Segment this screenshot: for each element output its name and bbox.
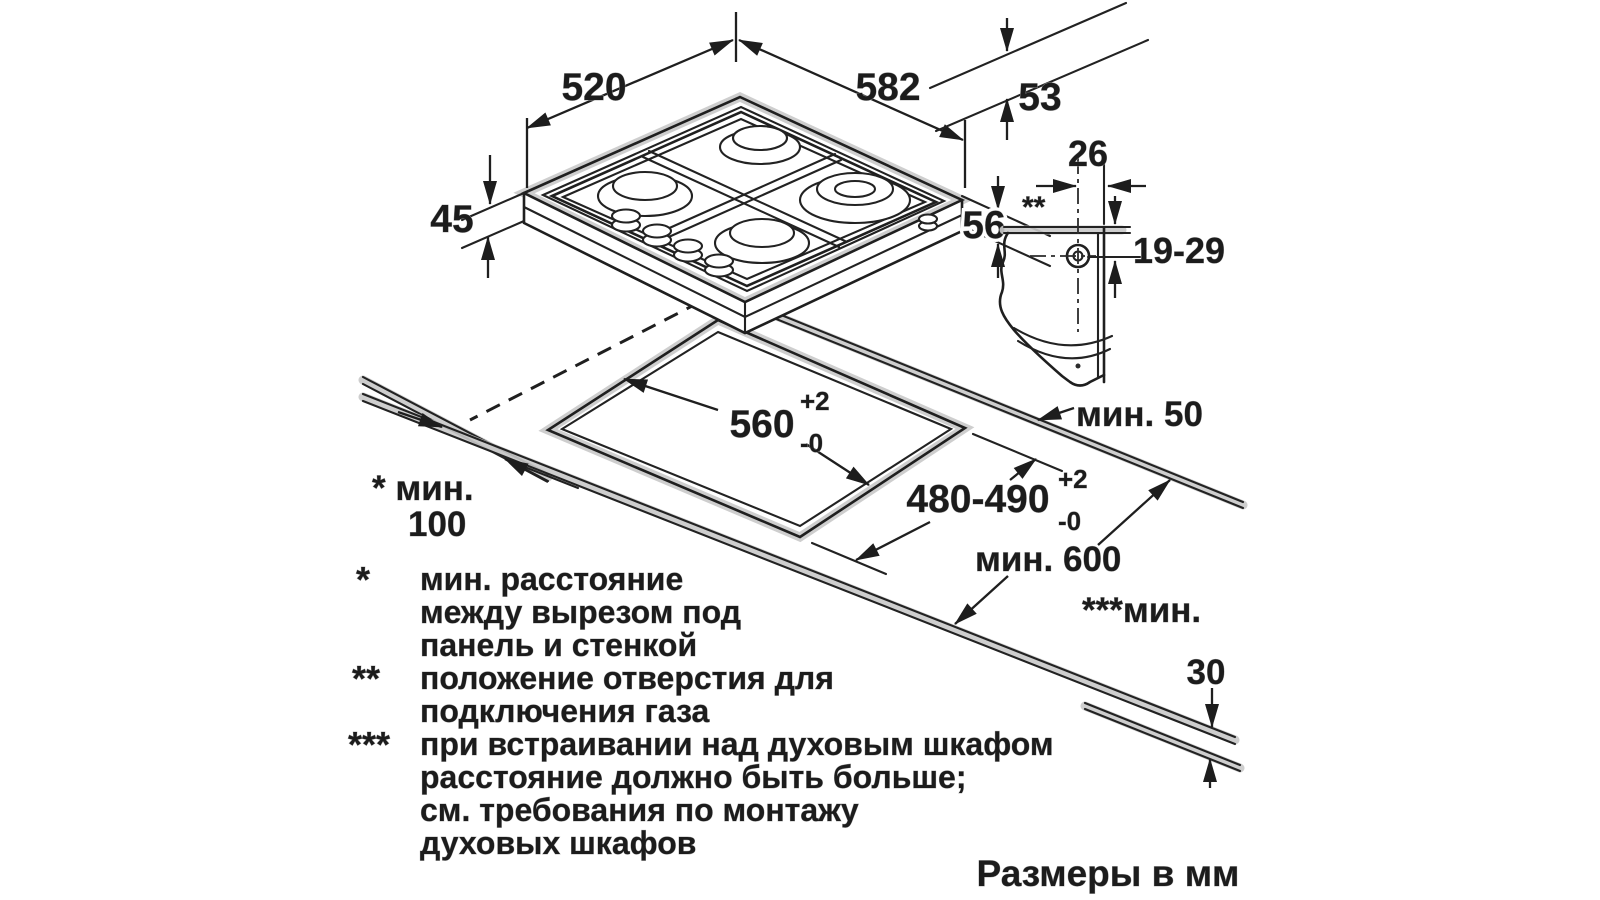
knob-4	[705, 255, 733, 277]
legend-marker-3: ***	[348, 724, 390, 765]
cutout-depth-tol-minus: -0	[1058, 506, 1081, 536]
legend: * мин. расстояние между вырезом под пане…	[348, 559, 1054, 861]
gas-note-marker: **	[1022, 191, 1046, 224]
grate-height-value: 53	[1018, 76, 1061, 119]
gas-hole	[1030, 158, 1096, 369]
hob-edge-profile	[1000, 227, 1130, 386]
installation-diagram-page: 560 +2 -0 480-490 +2 -0 мин. 50 мин. 600	[0, 0, 1600, 900]
bottom-clearance-label: ***мин.	[1082, 591, 1201, 630]
cutout-width-tol-plus: +2	[800, 386, 830, 416]
diagram-canvas: 560 +2 -0 480-490 +2 -0 мин. 50 мин. 600	[0, 0, 1600, 900]
legend-marker-1: *	[356, 559, 370, 600]
hob-depth-value: 520	[561, 66, 626, 109]
height-above-worktop-value: 45	[430, 198, 473, 241]
cutout-depth-tol-plus: +2	[1058, 464, 1088, 494]
ignition-element	[919, 215, 937, 231]
legend-row-2-line-2: подключения газа	[420, 693, 710, 729]
legend-marker-2: **	[352, 658, 380, 699]
rear-clearance-label: мин. 50	[1076, 395, 1203, 434]
knob-3	[674, 240, 702, 262]
legend-row-1-line-2: между вырезом под	[420, 594, 741, 630]
gas-offset-value: 26	[1068, 133, 1108, 174]
bottom-clearance-value: 30	[1187, 653, 1226, 692]
side-clearance-value: 100	[408, 505, 466, 544]
cutout-depth-value: 480-490	[906, 478, 1049, 521]
dimension-26: 26 **	[1022, 133, 1146, 224]
knob-1	[612, 210, 640, 232]
legend-row-1-line-1: мин. расстояние	[420, 561, 683, 597]
hob-drawing	[524, 97, 962, 333]
legend-row-3-line-2: расстояние должно быть больше;	[420, 759, 966, 795]
total-height-value: 56	[962, 204, 1005, 247]
dimension-45: 45	[430, 155, 524, 278]
dimension-53: 53	[930, 3, 1148, 140]
hob-width-value: 582	[855, 66, 920, 109]
legend-row-2-line-1: положение отверстия для	[420, 660, 834, 696]
legend-row-1-line-3: панель и стенкой	[420, 627, 697, 663]
knob-2	[643, 225, 671, 247]
worktop-depth-label: мин. 600	[975, 540, 1121, 579]
gas-height-range-value: 19-29	[1133, 230, 1225, 271]
dimension-19-29: 19-29	[1088, 196, 1225, 298]
units-note: Размеры в мм	[977, 853, 1240, 894]
cutout-width-value: 560	[729, 403, 794, 446]
legend-row-3-line-4: духовых шкафов	[420, 825, 696, 861]
legend-row-3-line-3: см. требования по монтажу	[420, 792, 859, 828]
side-clearance-label: * мин.	[372, 469, 474, 508]
cutout-width-tol-minus: -0	[800, 428, 823, 458]
legend-row-3-line-1: при встраивании над духовым шкафом	[420, 726, 1054, 762]
